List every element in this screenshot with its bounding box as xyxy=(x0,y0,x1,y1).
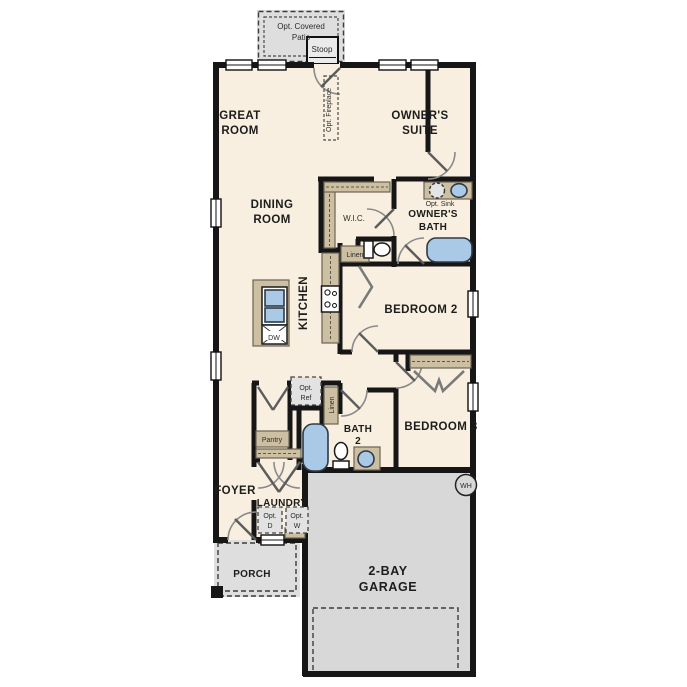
bath2-vanity xyxy=(354,447,380,470)
sink-icon xyxy=(358,451,374,467)
svg-text:ROOM: ROOM xyxy=(221,125,258,137)
bath2-toilet-icon xyxy=(333,443,349,470)
stoop-label: Stoop xyxy=(312,45,333,54)
dw-label: DW xyxy=(268,335,280,342)
svg-text:D: D xyxy=(267,523,272,530)
window xyxy=(468,383,478,411)
wh-label: WH xyxy=(460,483,472,490)
bath2-label: BATH xyxy=(344,424,372,435)
pantry-label: Pantry xyxy=(262,437,283,444)
bath2-tub-icon xyxy=(303,424,328,471)
island-sink-bowl xyxy=(265,290,284,306)
garage-label: 2-BAY xyxy=(368,564,407,578)
window xyxy=(379,60,406,70)
svg-text:SUITE: SUITE xyxy=(402,125,438,137)
svg-text:ROOM: ROOM xyxy=(253,214,290,226)
laundry-label: LAUNDRY xyxy=(257,498,308,509)
owners-bath-vanity xyxy=(424,182,472,199)
opt-ref-label: Opt. xyxy=(299,385,312,392)
window xyxy=(226,60,252,70)
owners-toilet-icon xyxy=(364,241,390,258)
floor-plan-drawing: Opt. Covered Patio Stoop GREAT ROOM Opt.… xyxy=(0,0,687,687)
porch-column xyxy=(211,586,223,598)
patio-label: Opt. Covered xyxy=(277,22,325,31)
optional-sink-icon xyxy=(430,183,445,198)
kitchen-counter xyxy=(322,253,340,343)
opt-w-label: Opt. xyxy=(290,513,303,520)
opt-sink-label: Opt. Sink xyxy=(426,201,455,208)
window xyxy=(258,60,286,70)
floor-plan-page: Opt. Covered Patio Stoop GREAT ROOM Opt.… xyxy=(0,0,687,687)
svg-text:BATH: BATH xyxy=(419,222,447,233)
svg-text:W: W xyxy=(294,523,301,530)
great-room-label: GREAT xyxy=(219,110,260,122)
foyer-label: FOYER xyxy=(214,485,256,497)
bedroom3-closet-shelf xyxy=(410,355,471,368)
window xyxy=(211,199,221,227)
range-stove-icon xyxy=(322,286,340,312)
wic-label: W.I.C. xyxy=(343,214,365,223)
bedroom3-label: BEDROOM 3 xyxy=(404,421,477,433)
window xyxy=(411,60,438,70)
linen-wic-label: Linen xyxy=(346,252,363,259)
porch-label: PORCH xyxy=(233,569,271,580)
fireplace-label: Opt. Fireplace xyxy=(326,88,333,132)
window xyxy=(261,535,284,545)
svg-text:GARAGE: GARAGE xyxy=(359,580,417,594)
svg-text:Ref: Ref xyxy=(301,395,312,402)
linen-hall-label: Linen xyxy=(329,396,336,413)
window xyxy=(468,291,478,317)
window xyxy=(211,352,221,380)
owners-tub-icon xyxy=(427,238,472,262)
sink-icon xyxy=(451,184,467,198)
svg-text:2: 2 xyxy=(355,436,361,447)
opt-d-label: Opt. xyxy=(263,513,276,520)
bedroom2-label: BEDROOM 2 xyxy=(384,304,457,316)
kitchen-label: KITCHEN xyxy=(298,276,310,330)
owners-suite-label: OWNER'S xyxy=(391,110,448,122)
dining-room-label: DINING xyxy=(251,199,294,211)
owners-bath-label: OWNER'S xyxy=(408,209,458,220)
svg-text:Patio: Patio xyxy=(292,33,311,42)
island-sink-bowl xyxy=(265,308,284,322)
